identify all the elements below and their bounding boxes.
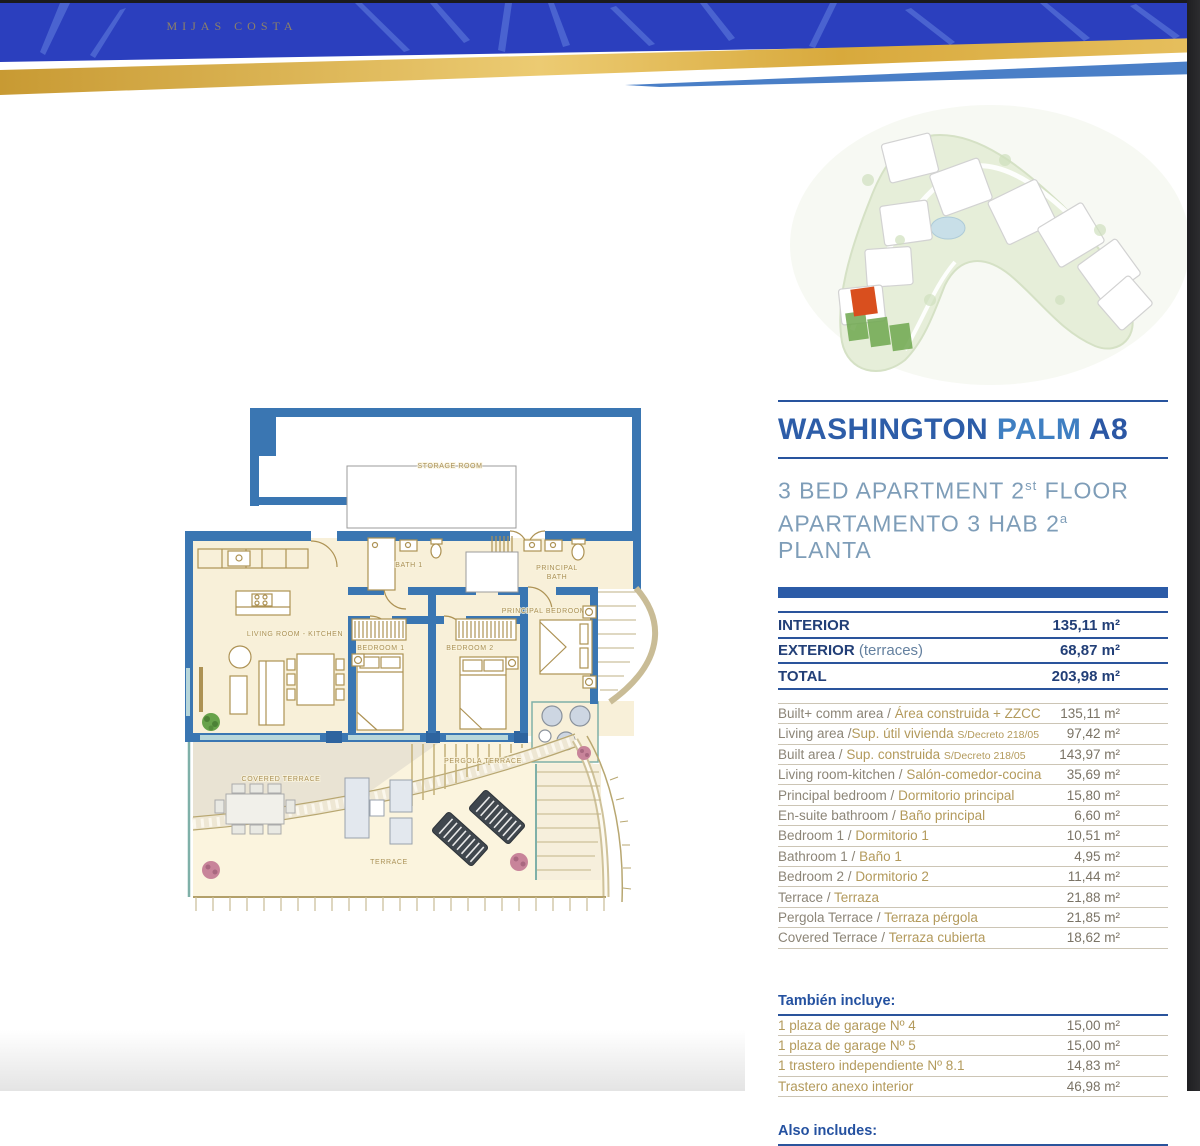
title-part: A8 — [1089, 413, 1128, 446]
area-row: Bedroom 2 / Dormitorio 211,44 m² — [778, 867, 1168, 887]
terrace-label: TERRACE — [370, 859, 408, 866]
area-value: 35,69 m² — [1067, 767, 1168, 782]
area-row: Built area / Sup. construida S/Decreto 2… — [778, 745, 1168, 765]
area-row: Built+ comm area / Área construida + ZZC… — [778, 704, 1168, 724]
includes-table: 1 plaza de garage Nº 415,00 m² 1 plaza d… — [778, 1016, 1168, 1098]
pergola-terrace-label: PERGOLA TERRACE — [444, 758, 522, 765]
floor-plan: STORAGE ROOM — [180, 400, 680, 952]
area-row: Principal bedroom / Dormitorio principal… — [778, 785, 1168, 805]
area-row: Bathroom 1 / Baño 14,95 m² — [778, 847, 1168, 867]
summary-label: EXTERIOR — [778, 642, 855, 659]
area-value: 4,95 m² — [1074, 849, 1168, 864]
include-row: Trastero anexo interior46,98 m² — [778, 1077, 1168, 1097]
area-value: 11,44 m² — [1068, 869, 1168, 884]
summary-row: EXTERIOR (terraces) 68,87 m² — [778, 637, 1168, 663]
covered-terrace-label: COVERED TERRACE — [242, 776, 321, 783]
divider — [778, 400, 1168, 402]
pool — [931, 217, 965, 239]
site-map — [780, 100, 1200, 390]
accent-bar — [778, 587, 1168, 598]
toilet-tank — [431, 539, 442, 544]
page-title: WASHINGTON PALM A8 — [778, 409, 1168, 451]
area-value: 21,85 m² — [1067, 910, 1168, 925]
area-row: Bedroom 1 / Dormitorio 110,51 m² — [778, 826, 1168, 846]
also-includes-es-heading: También incluye: — [778, 993, 1168, 1016]
info-panel: WASHINGTON PALM A8 3 BED APARTMENT 2st F… — [778, 400, 1168, 1146]
area-value: 6,60 m² — [1074, 808, 1168, 823]
area-row: Terrace / Terraza21,88 m² — [778, 887, 1168, 907]
coffee-table — [230, 676, 247, 714]
include-value: 14,83 m² — [1067, 1058, 1168, 1073]
summary-row: INTERIOR 135,11 m² — [778, 611, 1168, 637]
area-row: En-suite bathroom / Baño principal6,60 m… — [778, 806, 1168, 826]
header-banner: MIJAS COSTA — [0, 0, 1200, 110]
area-row: Pergola Terrace / Terraza pérgola21,85 m… — [778, 908, 1168, 928]
sofa — [259, 661, 284, 725]
highlighted-building — [850, 286, 878, 316]
summary-value: 203,98 m² — [1052, 668, 1168, 685]
summary-value: 68,87 m² — [1060, 642, 1168, 659]
summary-label: TOTAL — [778, 668, 827, 685]
window-right-edge — [1187, 0, 1200, 1091]
subtitle-line-en: 3 BED APARTMENT 2st FLOOR — [778, 472, 1168, 505]
title-part: WASHINGTON — [778, 413, 988, 446]
summary-table: INTERIOR 135,11 m² EXTERIOR (terraces) 6… — [778, 611, 1168, 690]
area-value: 97,42 m² — [1067, 726, 1168, 741]
summary-row: TOTAL 203,98 m² — [778, 662, 1168, 688]
area-value: 21,88 m² — [1067, 890, 1168, 905]
bath1-label: BATH 1 — [395, 562, 423, 569]
also-includes-en-heading: Also includes: — [778, 1123, 1168, 1146]
area-value: 10,51 m² — [1067, 828, 1168, 843]
area-row: Covered Terrace / Terraza cubierta18,62 … — [778, 928, 1168, 948]
summary-label: INTERIOR — [778, 617, 850, 634]
divider — [778, 457, 1168, 459]
brand-logo: MIJAS COSTA — [166, 19, 297, 33]
summary-value: 135,11 m² — [1052, 617, 1168, 634]
area-row: Living area /Sup. útil vivienda S/Decret… — [778, 724, 1168, 744]
window-top-edge — [0, 0, 1200, 3]
title-part: PALM — [997, 413, 1081, 446]
sink — [400, 540, 417, 551]
principal-bath-label: PRINCIPAL — [536, 565, 578, 572]
unit-subtitle: 3 BED APARTMENT 2st FLOOR APARTAMENTO 3 … — [778, 472, 1168, 564]
area-value: 15,80 m² — [1067, 788, 1168, 803]
bedroom-1: BEDROOM 1 — [352, 619, 406, 730]
area-value: 135,11 m² — [1060, 706, 1168, 721]
include-row: 1 plaza de garage Nº 515,00 m² — [778, 1036, 1168, 1056]
tv-unit — [199, 667, 203, 712]
area-value: 18,62 m² — [1067, 930, 1168, 945]
area-value: 143,97 m² — [1059, 747, 1168, 762]
include-row: 1 plaza de garage Nº 415,00 m² — [778, 1016, 1168, 1036]
dining-table — [287, 654, 344, 705]
area-row: Living room-kitchen / Salón-comedor-coci… — [778, 765, 1168, 785]
include-row: 1 trastero independiente Nº 8.114,83 m² — [778, 1056, 1168, 1076]
curved-staircase — [598, 588, 655, 702]
bed — [460, 657, 506, 729]
areas-table: Built+ comm area / Área construida + ZZC… — [778, 703, 1168, 949]
include-value: 46,98 m² — [1067, 1079, 1168, 1094]
include-value: 15,00 m² — [1067, 1038, 1168, 1053]
include-value: 15,00 m² — [1067, 1018, 1168, 1033]
armchair — [229, 646, 251, 668]
page-shadow — [0, 1030, 745, 1091]
bedroom2-label: BEDROOM 2 — [446, 645, 493, 652]
toilet — [431, 544, 441, 558]
bedroom1-label: BEDROOM 1 — [357, 645, 404, 652]
svg-text:BATH: BATH — [547, 574, 568, 581]
plant — [202, 713, 220, 731]
principal-bedroom-label: PRINCIPAL BEDROOM — [502, 608, 587, 615]
living-room-label: LIVING ROOM - KITCHEN — [247, 631, 343, 638]
storage-room-label: STORAGE ROOM — [417, 463, 482, 470]
subtitle-line-es: APARTAMENTO 3 HAB 2a PLANTA — [778, 505, 1168, 565]
